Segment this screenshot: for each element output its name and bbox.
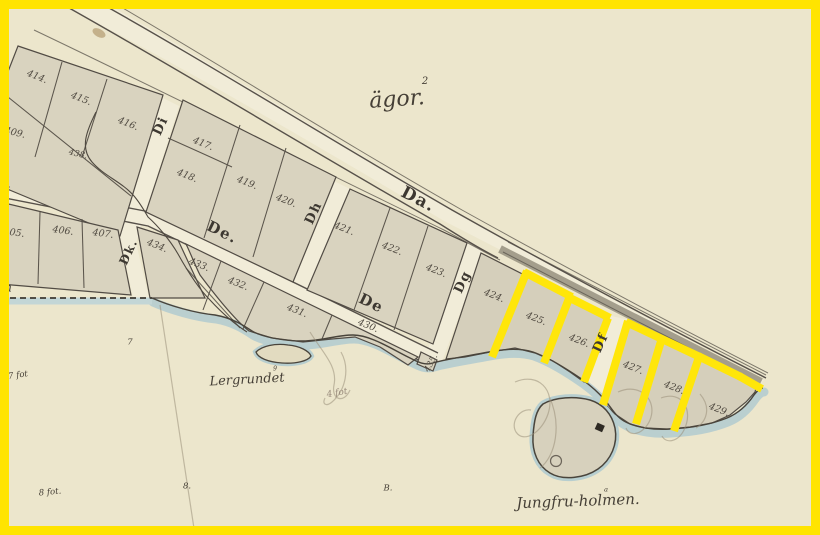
place-label-agor-superscript: 2 — [421, 76, 428, 87]
depth-note-eight: 8. — [183, 482, 191, 492]
depth-note-seven: 7 — [127, 338, 133, 348]
island-jungfruholmen — [533, 398, 616, 478]
depth-note-8-fot: 8 fot. — [38, 487, 61, 499]
map-svg: ägor.2Da.De.DeDiDk.DhDgDfd.n7405.406.407… — [0, 0, 820, 535]
place-label-agor: ägor. — [368, 85, 425, 114]
depth-note-b-mark: B. — [383, 484, 393, 494]
island-outline — [533, 398, 616, 478]
islet-lergrundet — [256, 344, 311, 363]
place-label-jungfruholmen-superscript: a — [604, 485, 608, 493]
historical-cadastral-map: ägor.2Da.De.DeDiDk.DhDgDfd.n7405.406.407… — [0, 0, 820, 535]
place-label-lergrundet-superscript: 9 — [273, 365, 277, 372]
